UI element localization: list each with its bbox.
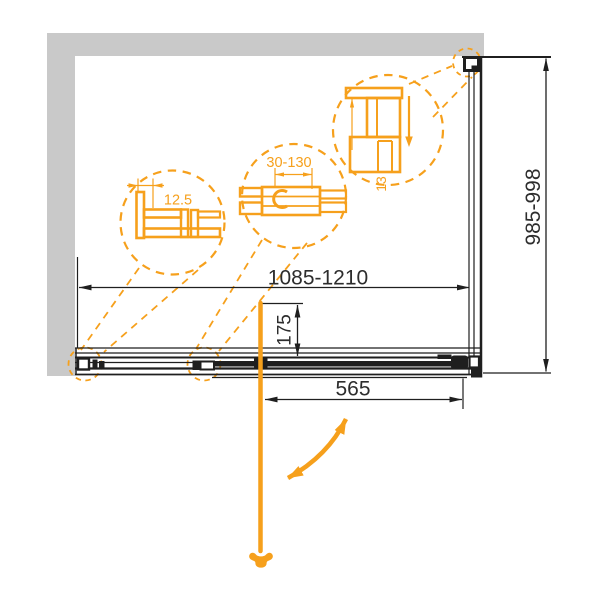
right-guide — [438, 355, 452, 360]
mid-clamp-block — [193, 361, 201, 371]
profile-shape — [320, 191, 346, 199]
profile-shape — [262, 187, 320, 215]
door-swing-arrow — [288, 419, 346, 478]
handle-tip — [249, 553, 273, 568]
arrowhead — [153, 183, 163, 188]
callout-connectors — [81, 66, 472, 352]
arrowhead — [275, 172, 284, 176]
detail-wall-profile-drawing: 12.5 — [127, 179, 220, 239]
detail-adjustment-drawing: 30-130 — [240, 155, 346, 215]
callout-connector — [81, 268, 139, 350]
profile-shape — [320, 203, 346, 213]
clip-shape — [274, 191, 287, 208]
dimension-height-value: 985-998 — [522, 168, 545, 245]
dimension-handle-offset-value: 175 — [275, 314, 296, 346]
profile-shape — [367, 98, 400, 137]
side-glass-panel — [469, 57, 481, 378]
profile-shape — [144, 210, 181, 218]
left-roller — [93, 360, 98, 370]
wall-top — [47, 33, 484, 56]
detail-top-profile-drawing: 13 — [346, 88, 413, 192]
left-wall-profile — [78, 359, 89, 370]
callout-connector — [104, 270, 198, 352]
door-track — [75, 348, 482, 378]
bracket-nub — [472, 66, 478, 71]
corner-block — [471, 369, 481, 378]
arrowhead — [303, 172, 312, 176]
dimension-door-width-value: 565 — [335, 378, 370, 401]
dimension-height: 985-998 — [483, 59, 551, 374]
corner-bracket — [470, 357, 480, 368]
callout-connector — [433, 77, 472, 117]
dimension-width-value: 1085-1210 — [268, 267, 368, 290]
arrowhead — [350, 99, 354, 108]
door-leaf — [212, 361, 456, 367]
profile-shape — [346, 88, 402, 98]
wall-left — [47, 56, 75, 376]
left-roller — [99, 361, 105, 369]
profile-shape — [181, 210, 188, 238]
detail-adjustment-value: 30-130 — [266, 155, 311, 171]
top-wall-bracket — [465, 58, 479, 71]
dimension-door-width: 565 — [265, 378, 463, 410]
detail-top-profile-value: 13 — [373, 176, 389, 192]
detail-wall-profile-value: 12.5 — [164, 193, 192, 209]
profile-shape — [198, 212, 220, 218]
callout-connector — [196, 240, 262, 349]
drawing-canvas: 12.5 30-130 — [0, 0, 600, 600]
down-arrow-icon — [405, 137, 413, 148]
mid-clamp — [201, 362, 215, 370]
shower-enclosure-technical-drawing: 12.5 30-130 — [0, 0, 600, 600]
right-roller — [451, 356, 468, 370]
